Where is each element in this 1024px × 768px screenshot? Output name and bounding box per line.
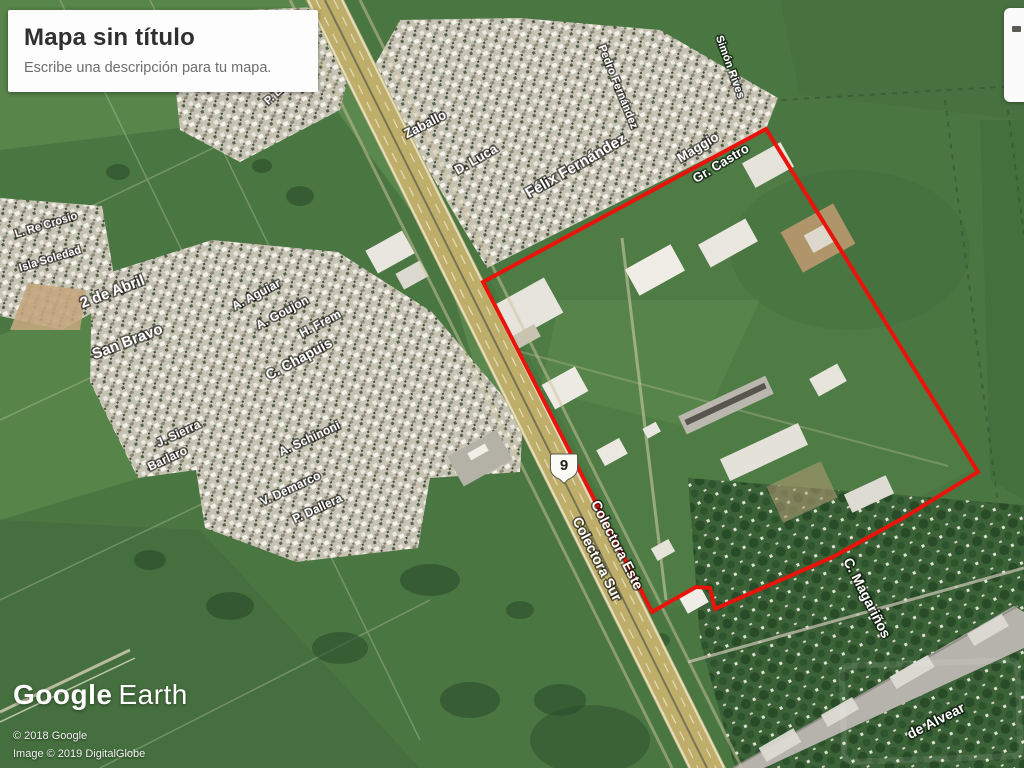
watermark [838,657,1023,765]
map-canvas[interactable]: ZaballoD. LucaFélix FernándezMaggioGr. C… [0,0,1024,768]
logo-google: Google [13,679,112,710]
app-window: ZaballoD. LucaFélix FernándezMaggioGr. C… [0,0,1024,768]
attribution-line1: © 2018 Google [13,730,87,742]
top-right-card-glyph [1012,26,1021,32]
route-9-shield: 9 [550,453,578,485]
attribution-line2: Image © 2019 DigitalGlobe [13,748,145,760]
route-number: 9 [550,457,578,474]
top-right-card[interactable] [1004,8,1024,102]
google-earth-logo: GoogleEarth [13,679,188,711]
logo-earth: Earth [118,679,187,710]
map-title-card[interactable]: Mapa sin título Escribe una descripción … [8,10,318,92]
map-description[interactable]: Escribe una descripción para tu mapa. [24,60,302,76]
map-title[interactable]: Mapa sin título [24,24,302,52]
